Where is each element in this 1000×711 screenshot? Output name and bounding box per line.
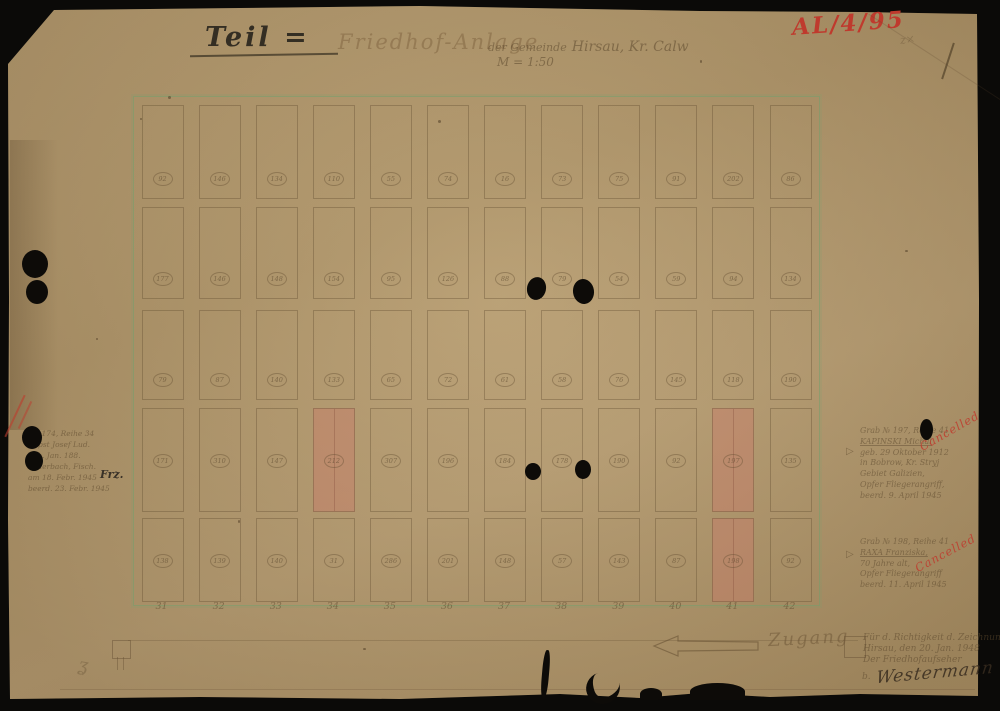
- plot-number: 74: [438, 172, 458, 186]
- plot-number: 202: [723, 172, 743, 186]
- title-gemeinde: der Gemeinde: [488, 41, 567, 54]
- plot-cell: 138: [142, 518, 184, 602]
- plot-cell: 92: [655, 408, 697, 512]
- plot-number: 59: [666, 272, 686, 286]
- plot-cell: 139: [199, 518, 241, 602]
- path-line-lower: [60, 689, 975, 690]
- plot-number: 95: [381, 272, 401, 286]
- plot-number: 58: [552, 373, 572, 387]
- plot-cell: 154: [313, 207, 355, 299]
- plot-cell: 87: [655, 518, 697, 602]
- plot-number: 190: [609, 454, 629, 468]
- plot-cell: 65: [370, 310, 412, 400]
- plot-cell: 196: [427, 408, 469, 512]
- plot-number: 143: [609, 554, 629, 568]
- plot-cell: 126: [427, 207, 469, 299]
- plot-cell: 76: [598, 310, 640, 400]
- plot-number: 88: [495, 272, 515, 286]
- left-grave-note: Gr. 174, Reihe 34Bopst Josef Lud.geb. Ja…: [28, 428, 128, 494]
- plot-number: 145: [666, 373, 686, 387]
- plot-number: 92: [153, 172, 173, 186]
- plot-number: 286: [381, 554, 401, 568]
- column-label: 32: [190, 601, 247, 612]
- speck: [363, 648, 366, 650]
- plot-number: 148: [495, 554, 515, 568]
- plot-cell: 198: [712, 518, 754, 602]
- plot-number: 139: [210, 554, 230, 568]
- plot-number: 140: [267, 554, 287, 568]
- plot-cell: 88: [484, 207, 526, 299]
- plot-number: 134: [781, 272, 801, 286]
- plot-number: 154: [324, 272, 344, 286]
- plot-number: 16: [495, 172, 515, 186]
- plot-cell: 171: [142, 408, 184, 512]
- title-place: Hirsau, Kr. Calw: [572, 39, 689, 55]
- column-label: 33: [247, 601, 304, 612]
- plot-cell: 147: [256, 408, 298, 512]
- hole-left-mid2: [25, 451, 43, 471]
- plot-cell: 58: [541, 310, 583, 400]
- plot-number: 86: [781, 172, 801, 186]
- speck: [168, 96, 171, 99]
- plot-cell: 184: [484, 408, 526, 512]
- grave198-pointer-icon: ▷: [846, 549, 854, 560]
- plot-number: 57: [552, 554, 572, 568]
- plot-number: 61: [495, 373, 515, 387]
- speck: [140, 118, 142, 120]
- plot-cell: 91: [655, 105, 697, 199]
- plot-number: 118: [723, 373, 743, 387]
- hole-center-c: [525, 463, 541, 480]
- plot-number: 75: [609, 172, 629, 186]
- plot-cell: 146: [199, 207, 241, 299]
- plot-cell: 148: [256, 207, 298, 299]
- hole-center-d: [575, 460, 591, 479]
- plot-cell: 145: [655, 310, 697, 400]
- plot-number: 135: [781, 454, 801, 468]
- plot-number: 87: [666, 554, 686, 568]
- plot-cell: 307: [370, 408, 412, 512]
- plot-cell: 31: [313, 518, 355, 602]
- plot-number: 72: [438, 373, 458, 387]
- column-label: 39: [590, 601, 647, 612]
- speck: [905, 250, 908, 252]
- plot-cell: 197: [712, 408, 754, 512]
- column-label: 41: [704, 601, 761, 612]
- plot-number: 65: [381, 373, 401, 387]
- plot-cell: 148: [484, 518, 526, 602]
- plot-cell: 57: [541, 518, 583, 602]
- gate-post-left: [112, 640, 131, 659]
- tear-3: [640, 688, 662, 700]
- hole-right-edge: [920, 419, 933, 440]
- plot-number: 134: [267, 172, 287, 186]
- speck: [700, 60, 702, 63]
- grave197-pointer-icon: ▷: [846, 446, 854, 457]
- plot-number: 76: [609, 373, 629, 387]
- plot-number: 94: [723, 272, 743, 286]
- title-prefix: Teil =: [205, 22, 310, 53]
- plot-cell: 75: [598, 105, 640, 199]
- plot-number: 148: [267, 272, 287, 286]
- column-label: 35: [361, 601, 418, 612]
- plot-cell: 54: [598, 207, 640, 299]
- plot-number: 54: [609, 272, 629, 286]
- plot-cell: 118: [712, 310, 754, 400]
- plot-cell: 177: [142, 207, 184, 299]
- plot-number: 184: [495, 454, 515, 468]
- plot-cell: 94: [712, 207, 754, 299]
- plot-cell: 74: [427, 105, 469, 199]
- plot-cell: 59: [655, 207, 697, 299]
- plot-number: 91: [666, 172, 686, 186]
- column-label: 31: [133, 601, 190, 612]
- plot-cell: 95: [370, 207, 412, 299]
- plot-cell: 55: [370, 105, 412, 199]
- column-label: 34: [304, 601, 361, 612]
- column-label: 36: [418, 601, 475, 612]
- plot-number: 190: [781, 373, 801, 387]
- plot-number: 79: [552, 272, 572, 286]
- gate-post-left-tick: [117, 657, 118, 670]
- plot-cell: 61: [484, 310, 526, 400]
- hole-left-top: [22, 250, 48, 278]
- plot-cell: 72: [427, 310, 469, 400]
- left-ink-note: Frz.: [100, 468, 124, 481]
- access-arrow-icon: [648, 633, 763, 659]
- plot-number: 178: [552, 454, 572, 468]
- plot-number: 310: [210, 454, 230, 468]
- plot-cell: 134: [256, 105, 298, 199]
- plot-cell: 133: [313, 310, 355, 400]
- plot-cell: 178: [541, 408, 583, 512]
- plot-cell: 190: [598, 408, 640, 512]
- column-label: 40: [647, 601, 704, 612]
- plot-number: 133: [324, 373, 344, 387]
- plot-cell: 87: [199, 310, 241, 400]
- plot-cell: 79: [142, 310, 184, 400]
- plot-number: 31: [324, 554, 344, 568]
- plot-number: 197: [723, 454, 743, 468]
- plot-number: 146: [210, 172, 230, 186]
- plot-number: 201: [438, 554, 458, 568]
- plot-cell: 16: [484, 105, 526, 199]
- plot-number: 147: [267, 454, 287, 468]
- column-label: 37: [476, 601, 533, 612]
- speck: [438, 120, 441, 123]
- plot-number: 307: [381, 454, 401, 468]
- plot-number: 92: [781, 554, 801, 568]
- speck: [238, 520, 240, 523]
- gate-post-left-tick2: [123, 657, 124, 670]
- signature-prefix: b.: [862, 672, 871, 682]
- hole-left-top2: [26, 280, 48, 304]
- plot-number: 138: [153, 554, 173, 568]
- plot-cell: 73: [541, 105, 583, 199]
- plot-cell: 135: [770, 408, 812, 512]
- plot-cell: 190: [770, 310, 812, 400]
- plot-number: 198: [723, 554, 743, 568]
- plot-number: 110: [324, 172, 344, 186]
- plot-cell: 201: [427, 518, 469, 602]
- title-subtitle: der Gemeinde Hirsau, Kr. Calw: [488, 36, 689, 55]
- plot-number: 177: [153, 272, 173, 286]
- plot-cell: 143: [598, 518, 640, 602]
- plot-cell: 146: [199, 105, 241, 199]
- plot-number: 212: [324, 454, 344, 468]
- plot-number: 196: [438, 454, 458, 468]
- plot-number: 126: [438, 272, 458, 286]
- plot-cell: 212: [313, 408, 355, 512]
- tear-4: [690, 683, 745, 700]
- scale-label: M = 1:50: [497, 55, 554, 69]
- plot-cell: 86: [770, 105, 812, 199]
- plot-cell: 286: [370, 518, 412, 602]
- plot-cell: 140: [256, 310, 298, 400]
- plot-number: 79: [153, 373, 173, 387]
- speck: [96, 338, 98, 340]
- access-label: Zugang: [768, 626, 850, 651]
- plot-number: 73: [552, 172, 572, 186]
- hole-left-mid: [22, 426, 42, 449]
- column-label: 38: [533, 601, 590, 612]
- plot-cell: 134: [770, 207, 812, 299]
- plot-number: 55: [381, 172, 401, 186]
- plot-cell: 92: [770, 518, 812, 602]
- column-label: 42: [761, 601, 818, 612]
- plot-cell: 92: [142, 105, 184, 199]
- plot-number: 171: [153, 454, 173, 468]
- plot-cell: 140: [256, 518, 298, 602]
- grave197-note: Grab № 197, Reihe 41KAPINSKI Michalgeb. …: [860, 426, 978, 502]
- plot-number: 87: [210, 373, 230, 387]
- plot-number: 92: [666, 454, 686, 468]
- plot-cell: 202: [712, 105, 754, 199]
- plot-number: 146: [210, 272, 230, 286]
- plot-cell: 310: [199, 408, 241, 512]
- plot-cell: 110: [313, 105, 355, 199]
- scanned-cemetery-plan: Teil = Friedhof-Anlage der Gemeinde Hirs…: [0, 0, 1000, 711]
- plot-number: 140: [267, 373, 287, 387]
